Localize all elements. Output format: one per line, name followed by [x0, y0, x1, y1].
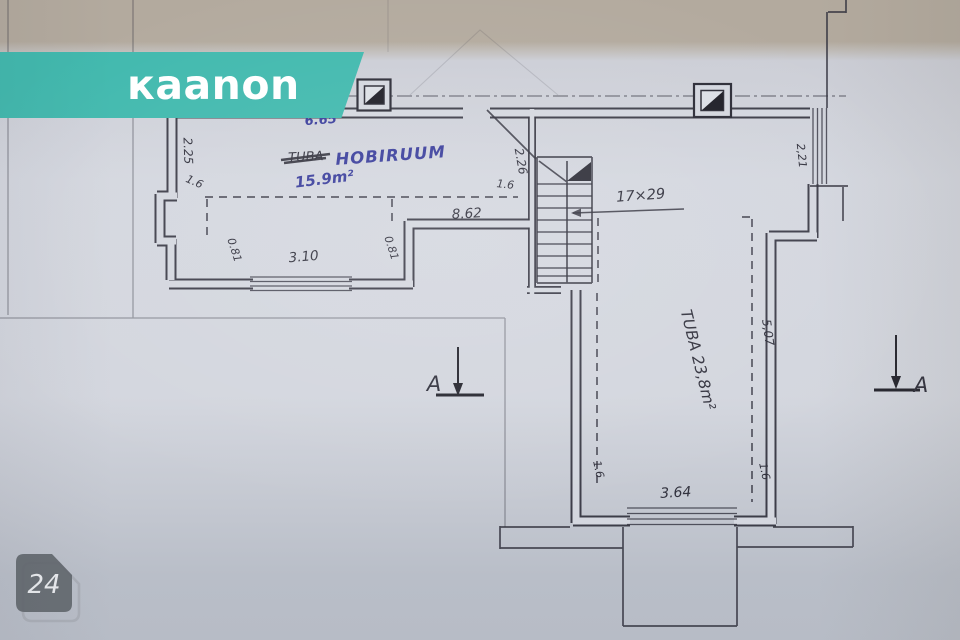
window-right-side — [813, 108, 827, 184]
interior-walls-core — [527, 109, 561, 294]
window-bottom-left — [250, 277, 352, 291]
stairs-leader — [571, 209, 684, 218]
exterior-walls — [157, 107, 817, 524]
window-bottom-right — [627, 508, 737, 525]
dim-left-step: 1.6 — [184, 172, 205, 191]
dim-left-jamb: 0.81 — [224, 236, 244, 263]
stair-treads — [537, 184, 592, 276]
room1-name: HOBIRUUM — [335, 142, 447, 169]
room1-area: 15.9m² — [294, 166, 355, 191]
stairs-label: 17×29 — [616, 186, 666, 205]
room1-struck-name: TUBA — [288, 149, 324, 166]
badge-shape: 24 — [14, 552, 96, 628]
walls — [157, 107, 817, 524]
stair-direction-triangle — [567, 162, 591, 181]
dim-room2-right-jamb: 1.6 — [756, 461, 772, 481]
dim-room2-left-jamb: 1.6 — [590, 459, 606, 479]
floorplan-photo: 6.65 2.25 1.6 0.81 3.10 0.81 8.62 1.6 2.… — [0, 0, 960, 640]
brand-logo: каanon — [127, 65, 300, 106]
section-letter-right: A — [912, 373, 928, 397]
dim-window2: 3.64 — [660, 484, 692, 502]
dim-window1: 3.10 — [288, 248, 319, 267]
brand-watermark-banner: каanon — [0, 52, 364, 118]
section-letter-left: A — [425, 372, 441, 396]
photo-count-badge: 24 — [14, 552, 96, 628]
plan-labels: 6.65 2.25 1.6 0.81 3.10 0.81 8.62 1.6 2.… — [181, 112, 929, 502]
dim-inner-width: 8.62 — [451, 205, 482, 223]
dim-left-height: 2.25 — [181, 137, 196, 164]
dim-door-width: 1.6 — [496, 177, 515, 192]
dim-right-window: 2,21 — [794, 143, 809, 169]
chimney-symbol-left — [358, 80, 391, 111]
photo-count: 24 — [27, 570, 60, 600]
chimney-symbol-right — [694, 84, 731, 117]
section-arrow-down-icon — [891, 376, 901, 389]
section-marker-left — [436, 347, 484, 396]
dim-right-depth: 5,07 — [759, 318, 777, 347]
dim-right-jamb: 0.81 — [381, 234, 401, 261]
room2-label: TUBA 23,8m² — [677, 308, 719, 412]
exterior-walls-core — [157, 107, 817, 524]
thin-lines — [487, 0, 853, 626]
